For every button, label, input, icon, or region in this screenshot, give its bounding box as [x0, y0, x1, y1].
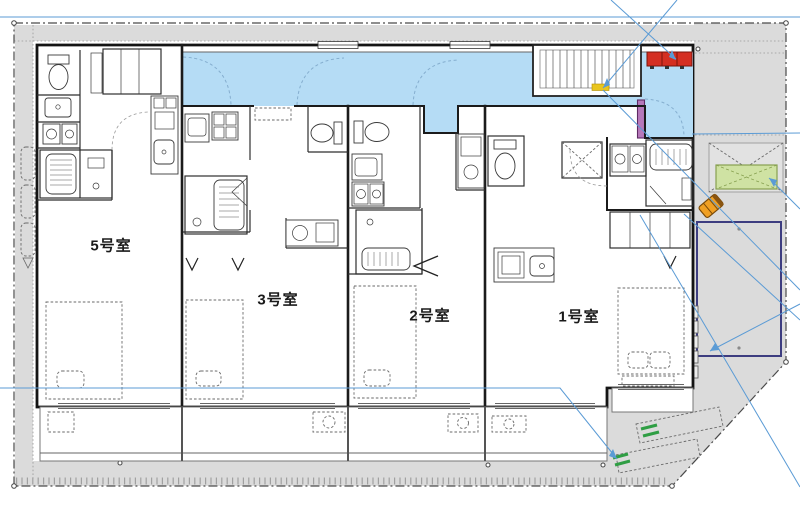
unit3-kitchen-icon: [286, 220, 338, 246]
unit3-stove-icon: [212, 112, 238, 140]
unit5-washbasin-icon: [45, 98, 71, 117]
staircase: [533, 45, 641, 96]
unit1-kitchen-icon: [494, 248, 554, 282]
terrace: [612, 388, 693, 412]
unit1-toilet-icon: [494, 140, 516, 179]
room-label-1: 1号室: [558, 306, 599, 327]
room-label-3: 3号室: [257, 289, 298, 310]
room-label-5: 5号室: [90, 235, 131, 256]
planter-refuse-area: [709, 143, 783, 192]
room-label-2: 2号室: [409, 305, 450, 326]
unit2-washbasin-icon: [352, 154, 382, 180]
meter-boxes-red: [647, 52, 692, 69]
unit5-toilet-icon: [48, 55, 69, 90]
unit2-toilet-icon: [354, 121, 389, 143]
floor-plan: 5号室 3号室 2号室 1号室: [0, 0, 800, 507]
unit5-kitchen-icon: [151, 96, 178, 174]
unit5-laundry-icon: [43, 124, 77, 144]
unit3-washbasin-icon: [185, 114, 209, 142]
unit3-toilet-icon: [311, 122, 342, 144]
unit2-kitchen-icon: [458, 134, 484, 188]
unit2-laundry-icon: [352, 182, 384, 206]
